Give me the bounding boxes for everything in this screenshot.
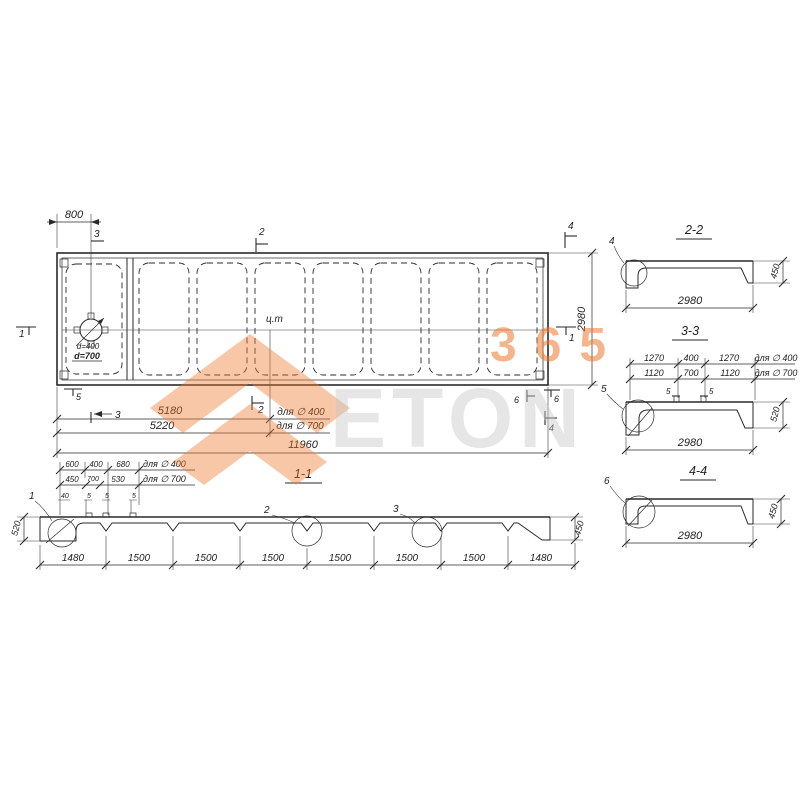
lifting-hole: d=400 d=700 [72, 313, 108, 361]
dim-520-left: 520 [9, 520, 23, 537]
dim-700: 700 [87, 476, 99, 483]
section-4-4: 4-4 6 2980 450 [604, 464, 790, 548]
cut-6a-bottom: 6 [514, 395, 519, 405]
section-1-1: 1-1 1 2 3 [9, 459, 586, 570]
slab-drawing: d=400 d=700 ц.т 800 3 2 4 1 [0, 0, 800, 800]
dim-800: 800 [65, 209, 84, 221]
dim-5c: 5 [132, 493, 136, 500]
dim-1120a: 1120 [644, 368, 663, 378]
dim-row2-label-s33: для ∅ 700 [755, 368, 798, 378]
dim-40: 40 [61, 493, 69, 500]
section-1-1-profile [40, 513, 550, 543]
dim-450: 450 [65, 475, 79, 484]
dim-row1-label-s33: для ∅ 400 [755, 353, 798, 363]
cut-1-right: 1 [569, 333, 575, 344]
detail-4-label: 4 [609, 236, 615, 247]
dim-400-s33: 400 [683, 353, 698, 363]
dim-5a: 5 [87, 493, 91, 500]
detail-3-label: 3 [393, 504, 399, 515]
section-2-2: 2-2 4 2980 450 [609, 223, 790, 313]
dim-5220: 5220 [150, 420, 175, 432]
corner-plate [60, 371, 68, 379]
dim-rowB-label: для ∅ 700 [143, 474, 186, 484]
dim-520-s33: 520 [768, 406, 782, 423]
watermark: ETON 365 [150, 319, 624, 485]
section-3-3: 3-3 1270 400 1270 для ∅ 400 1120 700 112… [601, 324, 797, 455]
dim-5-s33b: 5 [709, 387, 714, 396]
seg-1480a: 1480 [62, 553, 85, 564]
plan-dim-800: 800 [47, 209, 101, 318]
cut-4-top: 4 [568, 221, 574, 232]
cut-1-left: 1 [19, 329, 25, 340]
dim-rowA-label: для ∅ 400 [143, 459, 186, 469]
blueprint-canvas: d=400 d=700 ц.т 800 3 2 4 1 [0, 0, 800, 800]
cut-3-bottom: 3 [115, 410, 121, 421]
dim-2980-s44: 2980 [677, 530, 703, 542]
section-3-3-title: 3-3 [681, 324, 699, 338]
seg-1480b: 1480 [530, 553, 553, 564]
dim-1270b: 1270 [719, 353, 739, 363]
dim-2980-plan: 2980 [576, 306, 588, 332]
corner-plate [60, 259, 68, 267]
watermark-chevron-top [150, 334, 350, 433]
section-3-3-top-dims: 1270 400 1270 для ∅ 400 1120 700 1120 дл… [626, 353, 797, 400]
detail-5-label: 5 [601, 384, 607, 395]
dim-530: 530 [111, 475, 125, 484]
seg-1500a: 1500 [128, 553, 151, 564]
hole-diameter-400: d=400 [77, 342, 100, 351]
cut-2-top: 2 [258, 227, 265, 238]
section-1-1-bottom-dims: 1480 1500 1500 1500 1500 1500 1500 1480 [36, 536, 579, 570]
hole-diameter-700: d=700 [74, 351, 100, 361]
dim-450-s44: 450 [766, 503, 780, 520]
dim-2980-s33: 2980 [677, 437, 703, 449]
detail-2-label: 2 [263, 505, 270, 516]
detail-callouts-1-1: 1 2 3 [29, 491, 442, 547]
dim-2980-s22: 2980 [677, 295, 703, 307]
dim-1120b: 1120 [720, 368, 739, 378]
dim-700-s33: 700 [683, 368, 698, 378]
dim-11960: 11960 [288, 439, 319, 451]
dim-5-s33a: 5 [666, 387, 671, 396]
dim-400: 400 [89, 460, 103, 469]
seg-1500f: 1500 [463, 553, 486, 564]
dim-5180: 5180 [158, 405, 183, 417]
detail-1-label: 1 [29, 491, 35, 502]
plan-bottom-dims: 3 5180 для ∅ 400 5220 для ∅ 700 11960 2 [53, 387, 552, 458]
dim-5220-label: для ∅ 700 [276, 421, 324, 432]
dim-450-s22: 450 [768, 263, 782, 280]
section-1-1-top-dims: 600 400 680 для ∅ 400 450 700 530 для ∅ … [56, 459, 195, 515]
cg-label: ц.т [266, 314, 283, 325]
plan-view: d=400 d=700 ц.т 800 3 2 4 1 [16, 209, 598, 458]
seg-1500d: 1500 [329, 553, 352, 564]
dim-600: 600 [65, 460, 79, 469]
cut-5-bottom: 5 [76, 392, 82, 402]
seg-1500b: 1500 [195, 553, 218, 564]
section-4-4-title: 4-4 [689, 464, 707, 478]
section-1-1-title: 1-1 [294, 467, 312, 481]
dim-5180-label: для ∅ 400 [277, 407, 325, 418]
cut-6b-bottom: 6 [554, 394, 559, 404]
cut-3-top: 3 [94, 229, 100, 240]
dim-450-right: 450 [572, 520, 586, 537]
cut-4-bottom: 4 [549, 423, 554, 433]
plan-dim-height: 2980 [548, 249, 598, 389]
plan-outline [57, 253, 548, 385]
section-2-2-title: 2-2 [684, 223, 703, 237]
seg-1500e: 1500 [396, 553, 419, 564]
dim-1270a: 1270 [644, 353, 664, 363]
plan-panels [66, 263, 537, 375]
cut-2-bottom: 2 [257, 405, 264, 416]
dim-5b: 5 [105, 493, 109, 500]
dim-680: 680 [116, 460, 130, 469]
seg-1500c: 1500 [262, 553, 285, 564]
detail-6-label: 6 [604, 476, 610, 487]
